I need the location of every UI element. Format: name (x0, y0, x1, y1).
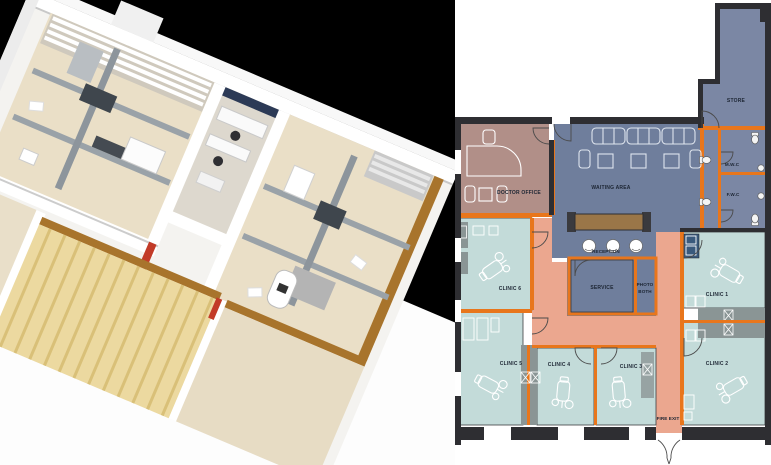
sink (758, 193, 764, 199)
label-doctor-office: DOCTOR OFFICE (497, 190, 541, 196)
label-clinic5: CLINIC 5 (500, 361, 522, 367)
label-clinic6: CLINIC 6 (499, 286, 521, 292)
room-clinic-6 (458, 218, 532, 310)
label-fwc: F.W.C (727, 192, 740, 197)
label-fire-exit: FIRE EXIT (657, 416, 680, 421)
screenshot: DOCTOR OFFICE WAITING AREA STORE M.W.C F… (0, 0, 771, 465)
label-reception: RECEPTION (592, 249, 620, 254)
label-clinic2: CLINIC 2 (706, 361, 728, 367)
label-photo-booth-line1: PHOTO (637, 282, 654, 287)
label-store: STORE (727, 98, 746, 104)
fire-exit-door (656, 440, 682, 464)
label-waiting-area: WAITING AREA (591, 185, 630, 191)
label-clinic4: CLINIC 4 (548, 362, 570, 368)
label-photo-booth-line2: BOTH (638, 289, 652, 294)
floor-plan-view: DOCTOR OFFICE WAITING AREA STORE M.W.C F… (455, 0, 771, 465)
label-mwc: M.W.C (725, 162, 740, 167)
label-clinic3: CLINIC 3 (620, 364, 642, 370)
3d-render-view (0, 0, 455, 465)
label-service: SERVICE (590, 285, 614, 291)
sink (758, 165, 764, 171)
room-clinic-5 (458, 312, 523, 425)
room-clinic-4 (537, 348, 594, 425)
label-clinic1: CLINIC 1 (706, 292, 728, 298)
reception-counter (567, 212, 651, 232)
